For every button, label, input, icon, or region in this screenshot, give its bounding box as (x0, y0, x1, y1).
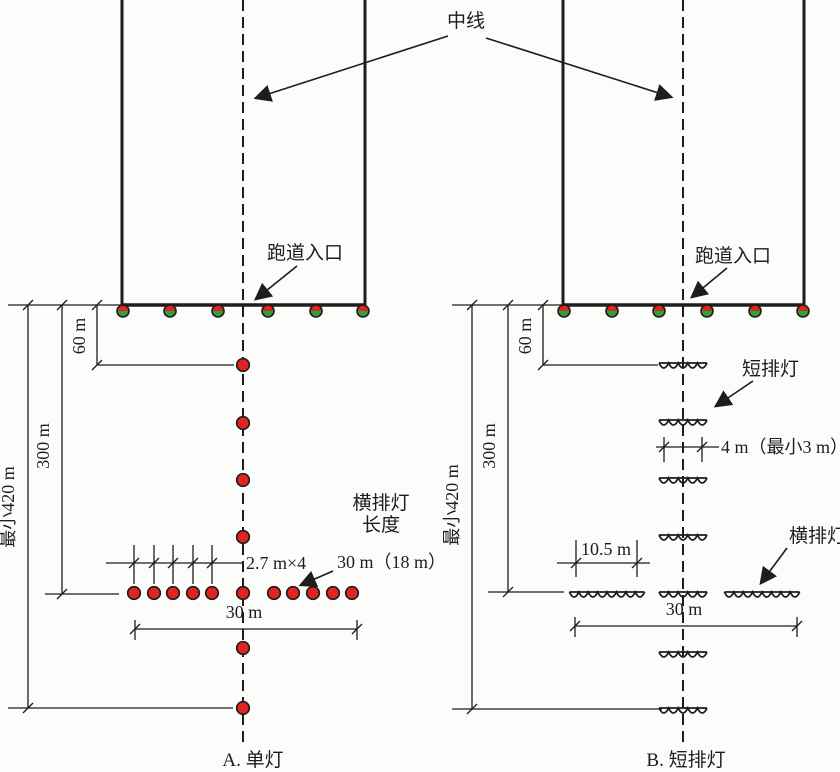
dim-spacing-a: 2.7 m×4 (246, 553, 306, 573)
crossbar-label-b: 横排灯 (789, 525, 840, 547)
dim-gap-105: 10.5 m (581, 539, 631, 559)
figure-canvas: 中线 60 m 3 (0, 0, 840, 772)
short-barrette-label: 短排灯 (742, 358, 799, 380)
centerline-label: 中线 (447, 10, 485, 32)
dim-60m-a: 60 m (69, 318, 89, 355)
dim-crossbar-length-a: 30 m（18 m） (337, 552, 446, 572)
dim-300m-a: 300 m (33, 423, 53, 469)
dim-420m-a: 最小420 m (0, 466, 18, 548)
background (0, 0, 840, 772)
threshold-label-a: 跑道入口 (267, 242, 343, 264)
dim-30m-b: 30 m (666, 599, 703, 619)
caption-a: A. 单灯 (222, 749, 283, 771)
dim-300m-b: 300 m (479, 423, 499, 469)
dim-barrette-length: 4 m（最小3 m） (721, 437, 840, 457)
crossbar-length-label-2: 长度 (362, 514, 400, 536)
threshold-label-b: 跑道入口 (695, 245, 771, 267)
crossbar-length-label-1: 横排灯 (352, 492, 409, 514)
caption-b: B. 短排灯 (646, 749, 725, 771)
dim-420m-b: 最小420 m (442, 464, 462, 546)
dim-60m-b: 60 m (515, 318, 535, 355)
approach-lighting-figure: 中线 60 m 3 (0, 0, 840, 772)
dim-30m-a: 30 m (226, 602, 263, 622)
